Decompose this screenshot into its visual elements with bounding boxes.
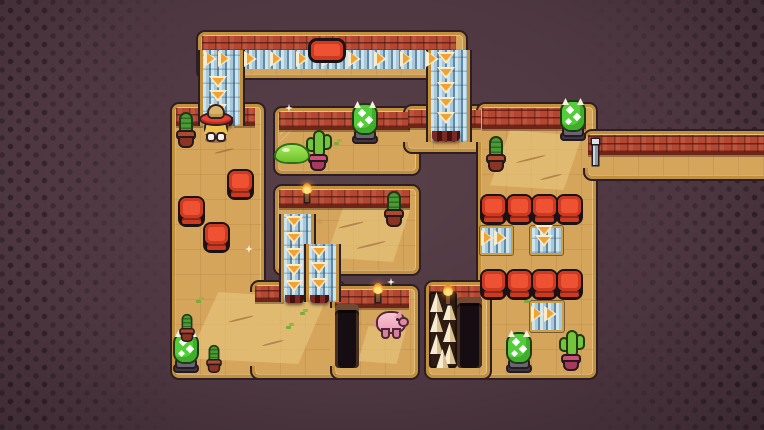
pit <box>457 297 482 368</box>
potted-cactus <box>178 314 195 342</box>
crate[interactable] <box>556 194 583 225</box>
conveyor-belt-r1-right[interactable] <box>480 226 513 255</box>
pig[interactable] <box>377 310 407 338</box>
crate[interactable] <box>480 269 507 300</box>
background-dots-left <box>0 0 190 430</box>
torch <box>373 283 383 303</box>
lever-post[interactable] <box>590 139 601 166</box>
grass-tuft <box>334 142 339 145</box>
crate[interactable] <box>178 196 205 227</box>
grass-tuft <box>524 300 529 303</box>
crate[interactable] <box>506 269 533 300</box>
conveyor-belt-r1-down[interactable] <box>530 226 563 255</box>
torch <box>443 285 453 305</box>
spiky-cactus <box>560 99 586 139</box>
grass-tuft <box>286 326 291 329</box>
potted-cactus <box>175 112 197 148</box>
spiky-cactus <box>506 331 532 371</box>
brick-wall <box>255 286 284 302</box>
conveyor-belt-right-col[interactable] <box>428 50 470 142</box>
potted-cactus <box>485 136 507 172</box>
conveyor-belt-mid-right[interactable] <box>306 244 339 302</box>
player-cowboy[interactable] <box>200 105 232 143</box>
torch <box>302 183 312 203</box>
crate[interactable] <box>531 269 558 300</box>
brick-wall <box>279 112 410 130</box>
cobweb <box>280 128 296 144</box>
game-viewport[interactable] <box>0 0 764 430</box>
slime-puddle <box>276 145 308 162</box>
saguaro-cactus <box>306 130 330 170</box>
crate[interactable] <box>203 222 230 253</box>
saguaro-cactus <box>559 330 583 370</box>
conveyor-chute <box>432 131 460 141</box>
pit <box>335 304 359 368</box>
potted-cactus <box>205 345 222 373</box>
sparkle-icon <box>387 278 395 286</box>
conveyor-chute <box>285 295 304 303</box>
red-wall-button[interactable] <box>308 38 346 63</box>
brick-wall <box>588 135 764 155</box>
crate[interactable] <box>480 194 507 225</box>
crate[interactable] <box>506 194 533 225</box>
crate[interactable] <box>531 194 558 225</box>
conveyor-chute <box>310 295 329 303</box>
potted-cactus <box>383 191 405 227</box>
conveyor-belt-r2-right[interactable] <box>530 301 564 332</box>
grass-tuft <box>300 312 305 315</box>
spiky-cactus <box>352 102 378 142</box>
crate[interactable] <box>556 269 583 300</box>
grass-tuft <box>196 300 201 303</box>
crate[interactable] <box>227 169 254 200</box>
background-dots-right <box>574 0 764 430</box>
